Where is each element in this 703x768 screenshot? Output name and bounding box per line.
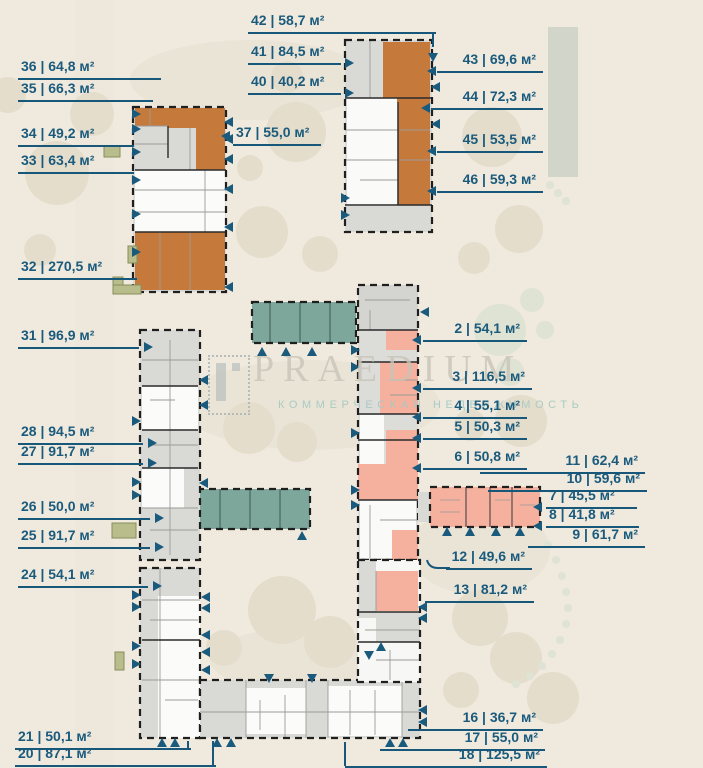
unit-label-3[interactable]: 3 | 116,5 м² (423, 368, 532, 390)
unit-label-43[interactable]: 43 | 69,6 м² (437, 51, 543, 73)
unit-label-41[interactable]: 41 | 84,5 м² (248, 43, 341, 65)
unit-label-24[interactable]: 24 | 54,1 м² (18, 566, 148, 588)
unit-label-27[interactable]: 27 | 91,7 м² (18, 443, 143, 465)
unit-label-32[interactable]: 32 | 270,5 м² (18, 258, 137, 280)
unit-label-28[interactable]: 28 | 94,5 м² (18, 423, 143, 445)
unit-label-40[interactable]: 40 | 40,2 м² (248, 73, 341, 95)
unit-label-25[interactable]: 25 | 91,7 м² (18, 527, 150, 549)
unit-label-8[interactable]: 8 | 41,8 м² (546, 506, 639, 528)
unit-label-37[interactable]: 37 | 55,0 м² (233, 124, 321, 146)
unit-label-42[interactable]: 42 | 58,7 м² (248, 12, 436, 34)
unit-label-21[interactable]: 21 | 50,1 м² (15, 728, 191, 750)
unit-labels-layer: 2 | 54,1 м²3 | 116,5 м²4 | 55,1 м²5 | 50… (0, 0, 703, 768)
unit-label-35[interactable]: 35 | 66,3 м² (18, 80, 153, 102)
site-plan: PRAEDIUM КОММЕРЧЕСКАЯ НЕДВИЖИМОСТЬ 2 | 5… (0, 0, 703, 768)
unit-label-11[interactable]: 11 | 62,4 м² (480, 452, 645, 474)
unit-label-12[interactable]: 12 | 49,6 м² (446, 548, 532, 570)
unit-label-45[interactable]: 45 | 53,5 м² (437, 131, 543, 153)
unit-label-18[interactable]: 18 | 125,5 м² (345, 746, 547, 768)
unit-label-26[interactable]: 26 | 50,0 м² (18, 498, 150, 520)
unit-label-5[interactable]: 5 | 50,3 м² (423, 418, 527, 440)
unit-label-9[interactable]: 9 | 61,7 м² (528, 526, 645, 548)
unit-label-16[interactable]: 16 | 36,7 м² (408, 709, 543, 731)
unit-label-4[interactable]: 4 | 55,1 м² (423, 397, 527, 419)
unit-label-2[interactable]: 2 | 54,1 м² (423, 320, 527, 342)
unit-label-13[interactable]: 13 | 81,2 м² (425, 581, 534, 603)
unit-label-36[interactable]: 36 | 64,8 м² (18, 58, 161, 80)
unit-label-33[interactable]: 33 | 63,4 м² (18, 152, 134, 174)
unit-label-31[interactable]: 31 | 96,9 м² (18, 327, 139, 349)
unit-label-44[interactable]: 44 | 72,3 м² (431, 88, 543, 110)
unit-label-34[interactable]: 34 | 49,2 м² (18, 125, 134, 147)
unit-label-46[interactable]: 46 | 59,3 м² (437, 171, 543, 193)
